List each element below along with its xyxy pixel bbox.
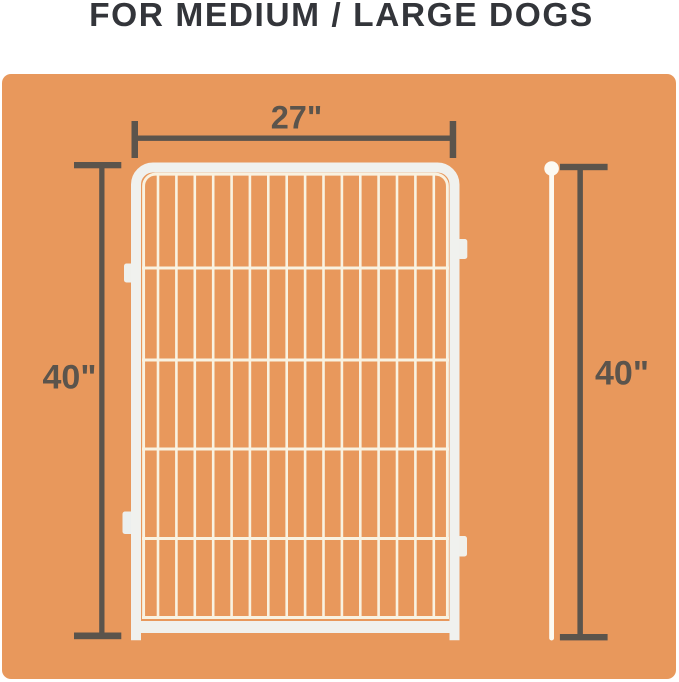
svg-text:40": 40" [595,355,649,393]
svg-text:27": 27" [271,100,323,136]
svg-text:40": 40" [43,359,97,397]
